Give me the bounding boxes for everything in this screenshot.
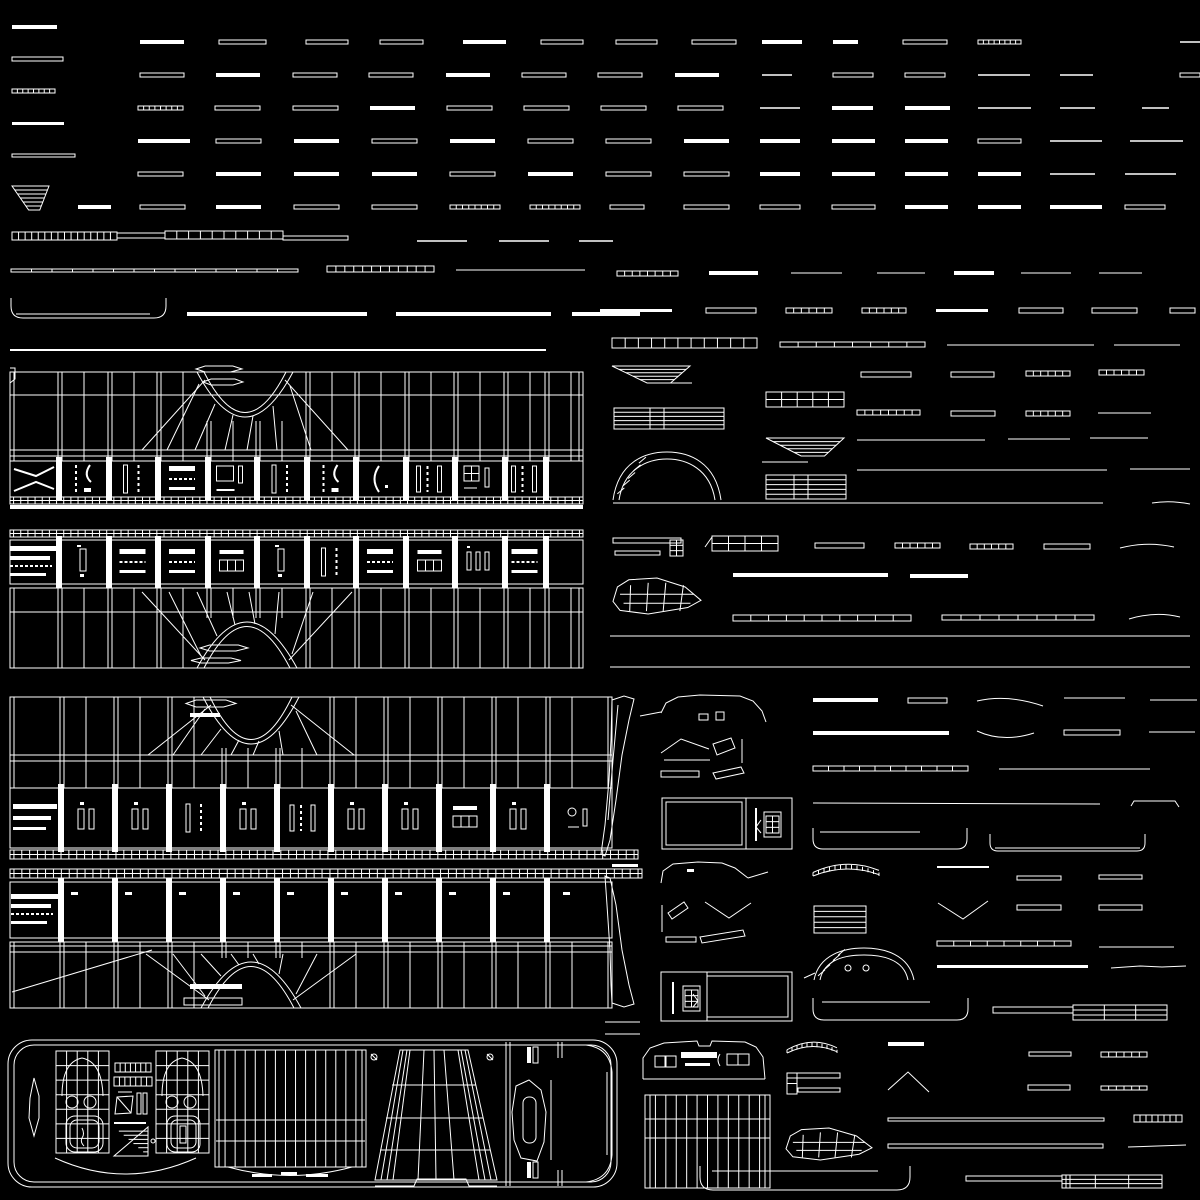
outline-bar bbox=[215, 106, 260, 110]
outline-bar bbox=[294, 205, 339, 209]
solid-bar bbox=[367, 570, 393, 573]
curve bbox=[162, 1058, 182, 1096]
right-band-c bbox=[640, 695, 1197, 851]
outline-bar bbox=[10, 882, 612, 938]
curve bbox=[977, 698, 1043, 706]
solid-bar bbox=[512, 570, 538, 573]
line bbox=[148, 705, 211, 755]
poly bbox=[713, 767, 744, 779]
poly bbox=[29, 1078, 39, 1136]
poly bbox=[661, 695, 766, 722]
curve bbox=[182, 1058, 203, 1096]
solid-bar bbox=[905, 139, 948, 143]
solid-bar bbox=[544, 784, 550, 852]
solid-bar bbox=[684, 139, 729, 143]
curve bbox=[203, 697, 299, 744]
solid-bar bbox=[403, 536, 409, 588]
outline-bar bbox=[1017, 905, 1061, 910]
poly bbox=[613, 578, 701, 614]
solid-bar bbox=[450, 139, 495, 143]
solid-bar bbox=[490, 878, 496, 942]
solid-bar bbox=[572, 312, 640, 316]
outline-bar bbox=[372, 139, 417, 143]
circle bbox=[568, 808, 576, 816]
solid-bar bbox=[813, 731, 949, 735]
outline-bar bbox=[476, 552, 480, 570]
outline-bar bbox=[380, 40, 423, 44]
line bbox=[387, 1050, 407, 1180]
solid-bar bbox=[681, 1052, 717, 1058]
solid-bar bbox=[503, 892, 510, 895]
curve bbox=[813, 869, 879, 876]
line bbox=[285, 380, 348, 450]
uv-wireframe-sheet bbox=[0, 0, 1200, 1200]
outline-bar bbox=[453, 816, 477, 827]
solid-bar bbox=[463, 40, 506, 44]
rounded-outline bbox=[66, 1116, 103, 1152]
outline-bar bbox=[905, 73, 945, 77]
outline-bar bbox=[89, 809, 94, 829]
solid-bar bbox=[888, 1042, 924, 1046]
outline-bar bbox=[606, 172, 651, 176]
solid-bar bbox=[833, 40, 858, 44]
curve bbox=[813, 998, 968, 1020]
solid-bar bbox=[220, 878, 226, 942]
outline-bar bbox=[311, 805, 315, 831]
solid-bar bbox=[905, 172, 948, 176]
solid-bar bbox=[10, 573, 46, 576]
solid-bar bbox=[600, 309, 672, 312]
outline-bar bbox=[706, 308, 756, 313]
solid-bar bbox=[954, 271, 994, 275]
outline-bar bbox=[137, 1093, 141, 1114]
solid-bar bbox=[71, 892, 78, 895]
outline-bar bbox=[521, 809, 526, 829]
solid-bar bbox=[220, 784, 226, 852]
solid-bar bbox=[12, 122, 64, 125]
side-strip-lower bbox=[10, 869, 642, 1034]
solid-bar bbox=[382, 784, 388, 852]
outline-bar bbox=[814, 906, 866, 933]
line bbox=[828, 960, 835, 966]
curve bbox=[619, 459, 715, 500]
solid-bar bbox=[403, 457, 409, 501]
poly bbox=[612, 366, 690, 383]
solid-bar bbox=[216, 73, 260, 77]
outline-bar bbox=[661, 771, 699, 777]
roof-strip-lower bbox=[10, 530, 583, 668]
outline-bar bbox=[533, 1047, 538, 1063]
outline-bar bbox=[293, 73, 337, 77]
solid-bar bbox=[760, 172, 800, 176]
solid-bar bbox=[106, 536, 112, 588]
solid-bar bbox=[418, 550, 442, 554]
solid-bar bbox=[205, 536, 211, 588]
outline-bar bbox=[1019, 308, 1063, 313]
solid-bar bbox=[936, 309, 988, 312]
outline-bar bbox=[322, 548, 326, 576]
solid-bar bbox=[396, 312, 551, 316]
solid-bar bbox=[187, 312, 367, 316]
roof-strip-upper bbox=[10, 366, 583, 509]
outline-bar bbox=[272, 465, 276, 493]
solid-bar bbox=[106, 457, 112, 501]
outline-bar bbox=[615, 551, 660, 555]
solid-bar bbox=[675, 73, 719, 77]
solid-bar bbox=[905, 205, 948, 209]
solid-bar bbox=[527, 1047, 531, 1063]
solid-bar bbox=[512, 549, 538, 554]
line bbox=[117, 1097, 131, 1113]
solid-bar bbox=[528, 172, 573, 176]
outline-bar bbox=[861, 372, 911, 377]
line bbox=[802, 1135, 803, 1158]
solid-bar bbox=[10, 546, 58, 551]
poly bbox=[1131, 801, 1179, 807]
rounded-outline bbox=[8, 1040, 617, 1187]
solid-bar bbox=[544, 878, 550, 942]
poly bbox=[705, 902, 751, 918]
solid-bar bbox=[978, 205, 1021, 209]
outline-bar bbox=[1017, 876, 1061, 880]
outline-bar bbox=[1099, 905, 1142, 910]
solid-bar bbox=[10, 556, 50, 560]
solid-bar bbox=[140, 40, 184, 44]
solid-bar bbox=[166, 878, 172, 942]
outline-bar bbox=[369, 73, 413, 77]
solid-bar bbox=[11, 921, 47, 924]
solid-bar bbox=[112, 784, 118, 852]
outline-bar bbox=[372, 205, 417, 209]
solid-bar bbox=[169, 466, 195, 471]
outline-bar bbox=[833, 73, 873, 77]
line bbox=[418, 1050, 424, 1180]
solid-bar bbox=[978, 172, 1021, 176]
outline-bar bbox=[1170, 308, 1195, 313]
outline-bar bbox=[598, 73, 642, 77]
solid-bar bbox=[138, 139, 190, 143]
poly bbox=[661, 739, 709, 753]
solid-bar bbox=[120, 549, 146, 554]
solid-bar bbox=[395, 892, 402, 895]
solid-bar bbox=[58, 784, 64, 852]
outline-bar bbox=[612, 338, 757, 348]
outline-bar bbox=[217, 466, 234, 481]
line bbox=[804, 973, 815, 978]
outline-bar bbox=[10, 588, 583, 668]
mid-band-left bbox=[10, 266, 640, 350]
solid-bar bbox=[169, 549, 195, 554]
poly bbox=[196, 366, 242, 372]
solid-bar bbox=[612, 864, 638, 867]
outline-bar bbox=[447, 106, 492, 110]
outline-bar bbox=[438, 466, 442, 492]
outline-bar bbox=[528, 139, 573, 143]
outline-bar bbox=[215, 1050, 366, 1167]
bottom-front-panel bbox=[8, 1040, 617, 1187]
solid-bar bbox=[242, 802, 246, 805]
line bbox=[1128, 1145, 1186, 1147]
solid-bar bbox=[436, 784, 442, 852]
outline-bar bbox=[78, 809, 84, 829]
line bbox=[434, 1050, 436, 1180]
outline-bar bbox=[766, 475, 846, 499]
solid-bar bbox=[169, 570, 195, 573]
solid-bar bbox=[77, 545, 81, 547]
solid-bar bbox=[155, 536, 161, 588]
outline-bar bbox=[1125, 205, 1165, 209]
line bbox=[680, 585, 684, 611]
line bbox=[169, 592, 201, 656]
circle bbox=[863, 965, 869, 971]
solid-bar bbox=[490, 784, 496, 852]
outline-bar bbox=[278, 549, 284, 571]
solid-bar bbox=[281, 1172, 297, 1175]
line bbox=[201, 729, 221, 755]
outline-bar bbox=[138, 172, 183, 176]
solid-bar bbox=[294, 139, 339, 143]
outline-bar bbox=[522, 73, 566, 77]
outline-bar bbox=[283, 236, 348, 240]
outline-bar bbox=[143, 1093, 147, 1114]
outline-bar bbox=[1064, 730, 1120, 735]
outline-bar bbox=[216, 139, 261, 143]
line bbox=[293, 954, 356, 1000]
solid-bar bbox=[294, 172, 339, 176]
outline-bar bbox=[684, 172, 729, 176]
outline-bar bbox=[661, 972, 792, 1021]
poly bbox=[713, 738, 735, 755]
line bbox=[195, 404, 215, 450]
outline-bar bbox=[1099, 875, 1142, 879]
solid-bar bbox=[58, 878, 64, 942]
outline-bar bbox=[1044, 544, 1090, 549]
outline-bar bbox=[12, 57, 63, 61]
solid-bar bbox=[350, 802, 354, 805]
outline-bar bbox=[240, 809, 246, 829]
solid-bar bbox=[287, 892, 294, 895]
solid-bar bbox=[760, 139, 800, 143]
line bbox=[173, 954, 205, 996]
circle bbox=[166, 1096, 178, 1108]
curve bbox=[1129, 614, 1180, 619]
line bbox=[247, 416, 253, 450]
curve bbox=[586, 1045, 612, 1072]
solid-bar bbox=[11, 894, 59, 899]
line bbox=[823, 965, 830, 971]
curve bbox=[375, 466, 380, 492]
outline-bar bbox=[510, 809, 516, 829]
line bbox=[640, 712, 661, 716]
outline-bar bbox=[888, 1118, 1104, 1121]
solid-bar bbox=[832, 139, 875, 143]
line bbox=[646, 583, 648, 611]
outline-bar bbox=[156, 1051, 209, 1153]
solid-bar bbox=[13, 816, 51, 820]
line bbox=[201, 954, 221, 976]
poly bbox=[14, 482, 54, 491]
outline-bar bbox=[143, 809, 148, 829]
poly bbox=[191, 658, 241, 663]
solid-bar bbox=[385, 485, 388, 488]
poly bbox=[700, 930, 745, 943]
solid-bar bbox=[13, 804, 57, 809]
solid-bar bbox=[11, 904, 51, 908]
line bbox=[835, 1132, 838, 1157]
solid-bar bbox=[78, 205, 111, 209]
solid-bar bbox=[254, 457, 260, 501]
outline-bar bbox=[117, 233, 165, 238]
solid-bar bbox=[687, 869, 694, 872]
solid-bar bbox=[905, 106, 950, 110]
uv-sheet-stage bbox=[0, 0, 1200, 1200]
curve bbox=[87, 465, 91, 482]
solid-bar bbox=[370, 106, 415, 110]
poly bbox=[668, 902, 688, 919]
outline-bar bbox=[1062, 1175, 1162, 1188]
outline-bar bbox=[132, 809, 138, 829]
poly bbox=[705, 537, 712, 547]
solid-bar bbox=[12, 25, 57, 29]
line bbox=[231, 954, 239, 965]
solid-bar bbox=[80, 574, 84, 577]
outline-bar bbox=[485, 468, 489, 487]
solid-bar bbox=[502, 536, 508, 588]
outline-bar bbox=[524, 106, 569, 110]
solid-bar bbox=[252, 1174, 272, 1177]
side-strip-upper bbox=[10, 696, 638, 867]
outline-bar bbox=[610, 205, 644, 209]
outline-bar bbox=[180, 1126, 186, 1143]
solid-bar bbox=[372, 172, 417, 176]
curve bbox=[334, 465, 338, 482]
solid-bar bbox=[502, 457, 508, 501]
line bbox=[273, 406, 277, 450]
circle bbox=[184, 1096, 196, 1108]
solid-bar bbox=[467, 546, 470, 548]
solid-bar bbox=[220, 550, 244, 554]
solid-bar bbox=[341, 892, 348, 895]
line bbox=[290, 386, 311, 450]
outline-bar bbox=[239, 466, 243, 483]
line bbox=[444, 1050, 454, 1180]
outline-bar bbox=[290, 805, 294, 831]
line bbox=[291, 705, 354, 755]
line bbox=[12, 950, 152, 992]
solid-bar bbox=[190, 984, 242, 989]
solid-bar bbox=[328, 878, 334, 942]
outline-bar bbox=[402, 809, 408, 829]
outline-bar bbox=[418, 560, 442, 571]
circle bbox=[84, 1096, 96, 1108]
outline-bar bbox=[10, 461, 583, 497]
solid-bar bbox=[446, 73, 490, 77]
solid-bar bbox=[332, 488, 339, 492]
outline-bar bbox=[716, 712, 724, 720]
dash-grid bbox=[78, 40, 1200, 241]
solid-bar bbox=[543, 536, 549, 588]
line bbox=[146, 954, 209, 1000]
line bbox=[851, 1135, 854, 1158]
line bbox=[142, 380, 205, 450]
poly bbox=[766, 438, 844, 456]
solid-bar bbox=[762, 40, 802, 44]
outline-bar bbox=[655, 1056, 665, 1067]
curve bbox=[820, 955, 908, 980]
curve bbox=[204, 372, 286, 413]
line bbox=[634, 465, 641, 471]
poly bbox=[661, 862, 748, 883]
outline-bar bbox=[993, 1007, 1073, 1013]
outline-bar bbox=[10, 372, 583, 461]
solid-bar bbox=[512, 802, 516, 805]
outline-bar bbox=[359, 809, 364, 829]
solid-bar bbox=[527, 1162, 531, 1178]
solid-bar bbox=[452, 457, 458, 501]
outline-bar bbox=[815, 543, 864, 548]
solid-bar bbox=[216, 205, 261, 209]
outline-bar bbox=[541, 40, 583, 44]
outline-bar bbox=[666, 802, 742, 845]
curve bbox=[1120, 544, 1174, 548]
outline-bar bbox=[12, 154, 75, 157]
curve bbox=[81, 1128, 84, 1146]
circle bbox=[845, 965, 851, 971]
outline-bar bbox=[951, 372, 994, 377]
solid-bar bbox=[275, 545, 279, 547]
outline-bar bbox=[951, 411, 995, 416]
outline-bar bbox=[832, 205, 875, 209]
outline-bar bbox=[666, 937, 696, 942]
outline-bar bbox=[666, 1056, 676, 1067]
curve bbox=[813, 828, 967, 849]
rounded-outline bbox=[167, 1116, 200, 1152]
outline-bar bbox=[417, 466, 421, 492]
solid-bar bbox=[205, 457, 211, 501]
outline-bar bbox=[678, 106, 723, 110]
outline-bar bbox=[533, 466, 537, 492]
outline-bar bbox=[467, 552, 471, 570]
solid-bar bbox=[84, 488, 91, 492]
outline-bar bbox=[614, 408, 724, 429]
circle bbox=[151, 1139, 155, 1143]
outline-bar bbox=[293, 106, 338, 110]
solid-bar bbox=[216, 172, 261, 176]
solid-bar bbox=[404, 802, 408, 805]
solid-bar bbox=[832, 172, 875, 176]
line bbox=[630, 585, 631, 611]
solid-bar bbox=[563, 892, 570, 895]
poly bbox=[643, 1041, 765, 1079]
solid-bar bbox=[254, 536, 260, 588]
outline-bar bbox=[692, 40, 736, 44]
rounded-outline bbox=[523, 1097, 536, 1143]
curve bbox=[11, 298, 166, 318]
solid-bar bbox=[449, 892, 456, 895]
line bbox=[142, 592, 205, 660]
line bbox=[225, 415, 233, 450]
outline-bar bbox=[413, 809, 418, 829]
outline-bar bbox=[140, 73, 184, 77]
curve bbox=[586, 1155, 612, 1182]
curve bbox=[62, 1058, 82, 1096]
solid-bar bbox=[353, 536, 359, 588]
solid-bar bbox=[832, 106, 873, 110]
curve bbox=[700, 1166, 910, 1190]
curve bbox=[82, 1058, 103, 1096]
solid-bar bbox=[543, 457, 549, 501]
solid-bar bbox=[155, 457, 161, 501]
